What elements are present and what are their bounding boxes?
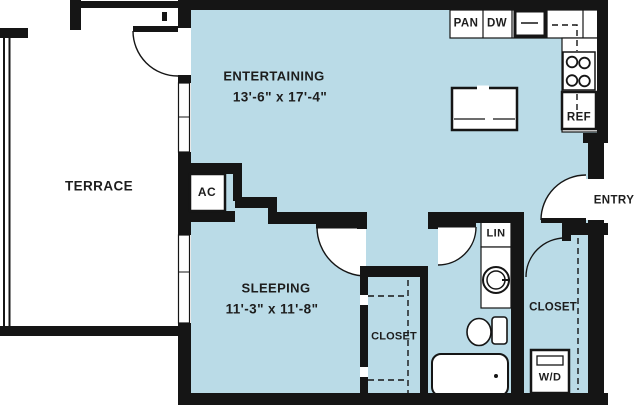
bathroom-sink-icon: [481, 247, 511, 308]
pantry-label: PAN: [454, 18, 479, 30]
window-sleeping: [179, 235, 190, 323]
kitchen-island: [452, 86, 517, 131]
linen-label: LIN: [487, 229, 506, 240]
toilet-icon: [467, 317, 507, 346]
ac-label: AC: [198, 186, 216, 198]
floor-plan-drawing: [0, 0, 640, 408]
sleeping-dimensions: 11'-3" x 11'-8": [226, 302, 319, 316]
entry-label: ENTRY: [594, 195, 635, 207]
terrace-railing: [3, 38, 5, 328]
stove-icon: [563, 52, 595, 90]
dishwasher-label: DW: [487, 18, 507, 30]
sleeping-label: SLEEPING: [242, 282, 311, 295]
terrace-label: TERRACE: [65, 179, 133, 193]
floor-plan: TERRACE ENTERTAINING 13'-6" x 17'-4" SLE…: [0, 0, 640, 408]
washer-dryer-label: W/D: [539, 373, 562, 384]
entertaining-dimensions: 13'-6" x 17'-4": [233, 90, 327, 104]
bedroom-closet-label: CLOSET: [371, 332, 417, 343]
entertaining-label: ENTERTAINING: [223, 70, 324, 83]
bathtub-icon: [432, 354, 508, 396]
refrigerator-label: REF: [567, 112, 591, 124]
entry-closet-label: CLOSET: [529, 302, 577, 314]
